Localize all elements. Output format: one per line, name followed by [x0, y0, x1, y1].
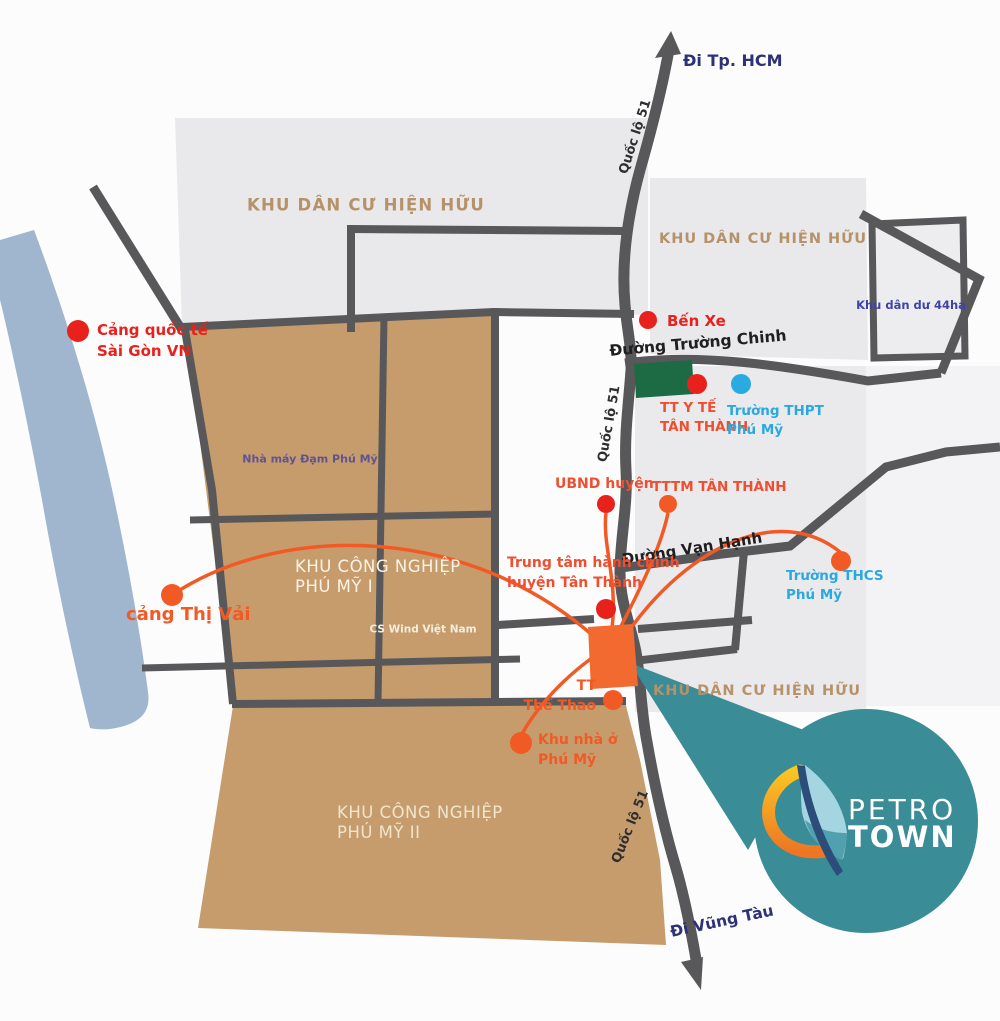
- petro-town-site: [588, 624, 638, 689]
- arrow-south-vung-tau: [681, 957, 703, 990]
- green-block: [634, 360, 694, 398]
- logo-wordmark-town: TOWN: [848, 820, 957, 854]
- arrow-north-hcm: [655, 31, 681, 58]
- road-top-left-diagonal: [93, 187, 182, 330]
- residential-zone-top-right: [650, 178, 868, 360]
- residential-zone-top-left: [175, 118, 648, 326]
- road-kcn-divider: [232, 701, 626, 704]
- residential-zone-far-east: [866, 366, 1000, 706]
- road-mid-horizontal: [492, 312, 634, 314]
- map-canvas: [0, 0, 1000, 1021]
- industrial-zone-phu-my-2: [198, 702, 666, 945]
- connector-ubnd-huyen: [605, 513, 613, 628]
- river-thi-vai: [0, 230, 148, 729]
- industrial-zone-phu-my-1: [185, 310, 497, 702]
- road-loop-top: [350, 229, 625, 231]
- map-stage: Đi Tp. HCMĐi Vũng TàuQuốc lộ 51Quốc lộ 5…: [0, 0, 1000, 1021]
